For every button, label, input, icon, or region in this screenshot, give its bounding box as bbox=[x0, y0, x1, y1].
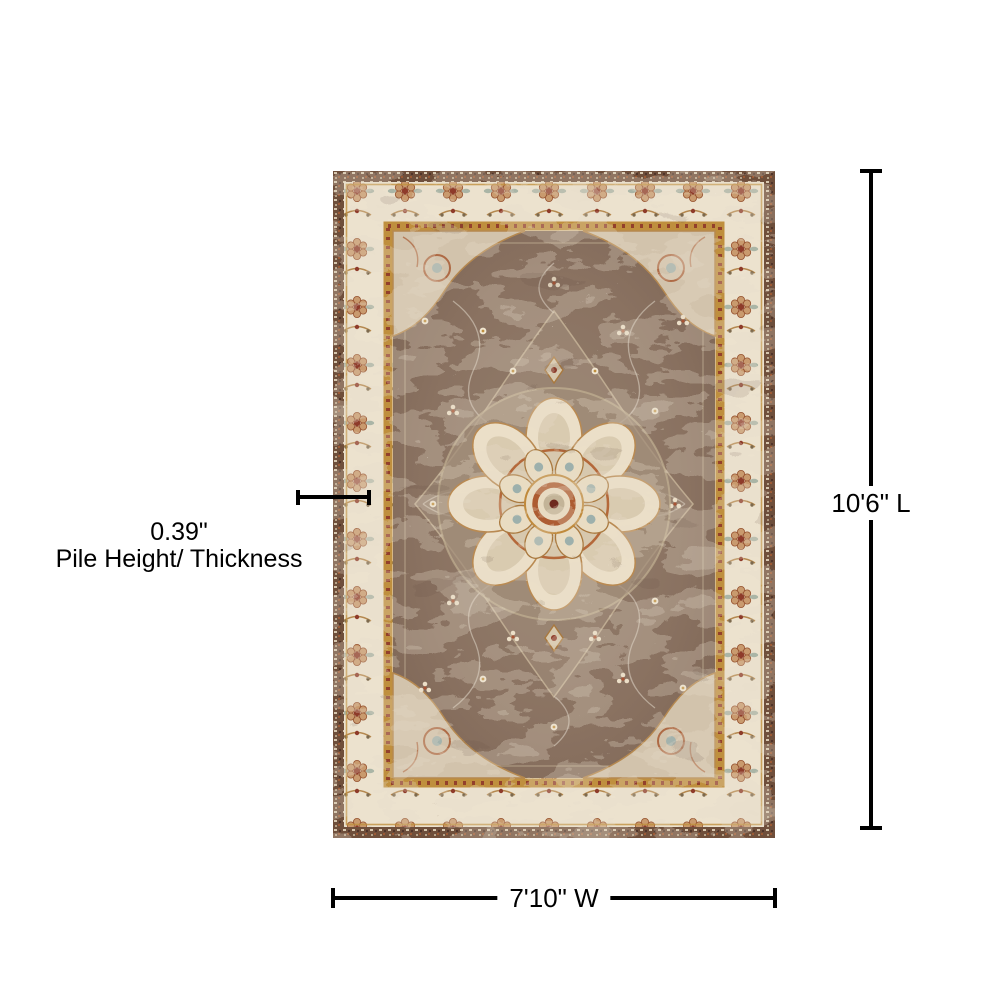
pile-indicator-line bbox=[298, 495, 371, 499]
width-dimension-left-cap bbox=[331, 888, 335, 908]
pile-indicator-right-cap bbox=[367, 490, 371, 505]
pile-indicator-left-cap bbox=[296, 490, 300, 505]
width-dimension-right-cap bbox=[773, 888, 777, 908]
length-dimension-bottom-cap bbox=[860, 826, 882, 830]
pile-height-label: 0.39" Pile Height/ Thickness bbox=[56, 519, 303, 573]
product-dimension-figure: 0.39" Pile Height/ Thickness 10'6" L 7'1… bbox=[0, 0, 1000, 1000]
pile-height-text: Pile Height/ Thickness bbox=[56, 546, 303, 573]
rug-graphic bbox=[333, 171, 775, 838]
pile-height-value: 0.39" bbox=[56, 519, 303, 546]
length-dimension-top-cap bbox=[860, 169, 882, 173]
width-dimension-label: 7'10" W bbox=[497, 881, 610, 915]
rug-distress-texture bbox=[333, 171, 775, 838]
rug-image bbox=[333, 171, 775, 838]
length-dimension-label: 10'6" L bbox=[819, 486, 922, 520]
